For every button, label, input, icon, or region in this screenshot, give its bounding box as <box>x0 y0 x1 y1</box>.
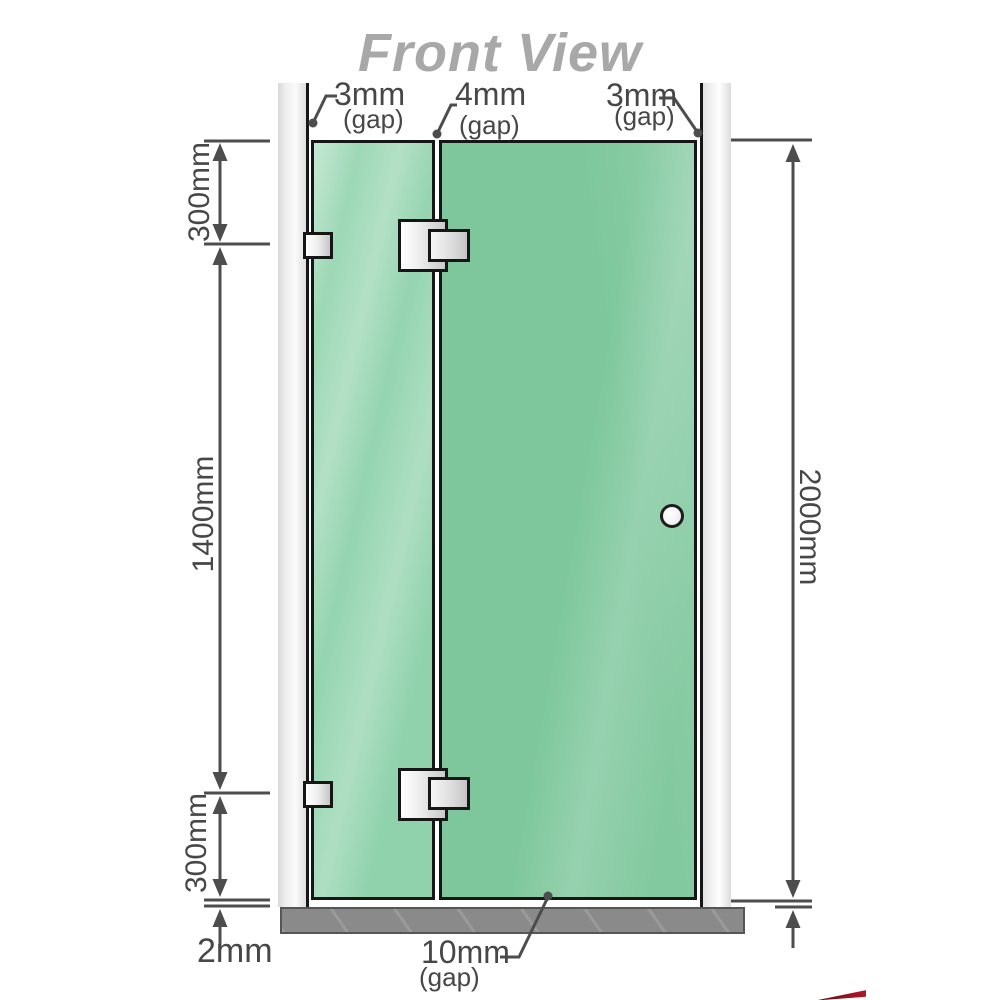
gap-label-top-left-note: (gap) <box>343 106 404 132</box>
wall-bracket-bottom <box>303 781 333 808</box>
right-wall <box>700 83 731 907</box>
glass-door-panel <box>439 140 697 900</box>
gap-label-top-right-note: (gap) <box>614 103 675 129</box>
door-handle-knob <box>660 504 684 528</box>
gap-label-top-middle-value: 4mm <box>455 78 526 110</box>
floor-gap-label: 2mm <box>197 934 273 968</box>
watermark-fragment <box>818 989 866 1000</box>
wall-bracket-top <box>303 232 333 259</box>
dimension-label-right: 2000mm <box>794 469 824 586</box>
hinge-top-tab <box>428 229 470 262</box>
dimension-label-top-left: 300mm <box>185 142 215 242</box>
floor <box>280 907 745 934</box>
shower-screen-front-view-diagram: Front View <box>0 0 1000 1000</box>
dimension-label-middle-left: 1400mm <box>189 456 219 573</box>
diagram-title: Front View <box>358 22 642 84</box>
hinge-bottom-tab <box>428 777 470 810</box>
gap-label-top-middle-note: (gap) <box>459 112 520 138</box>
gap-label-bottom-note: (gap) <box>419 964 480 990</box>
dimension-label-bottom-left: 300mm <box>182 793 212 893</box>
